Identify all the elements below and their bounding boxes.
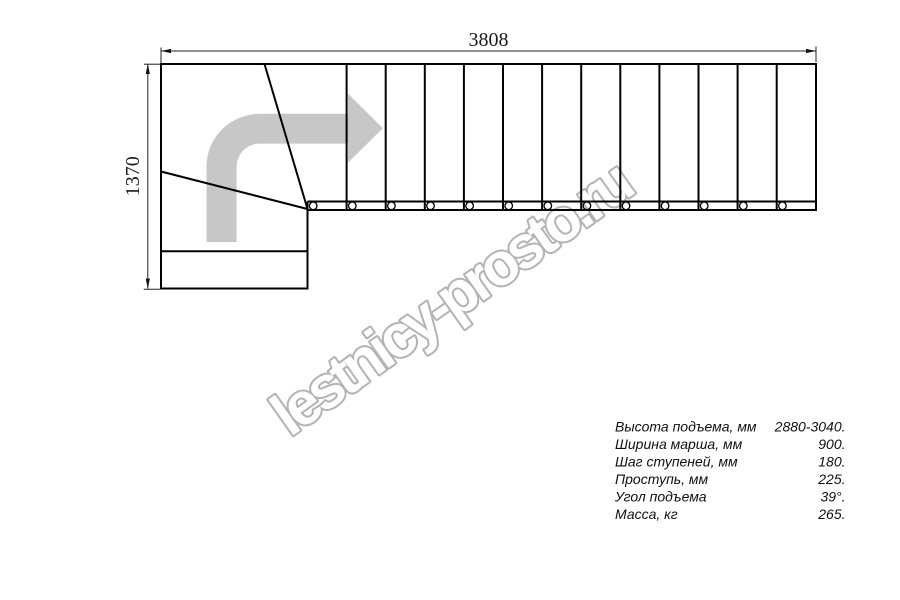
svg-text:Проступь, мм: Проступь, мм [615, 471, 709, 487]
svg-text:Угол подъема: Угол подъема [614, 489, 707, 505]
svg-text:Шаг ступеней, мм: Шаг ступеней, мм [615, 454, 738, 470]
svg-text:Ширина марша, мм: Ширина марша, мм [615, 436, 743, 452]
svg-text:lestnicy-prosto.ru: lestnicy-prosto.ru [259, 149, 643, 448]
svg-text:Высота подъема, мм: Высота подъема, мм [615, 419, 757, 435]
svg-text:1370: 1370 [122, 156, 144, 196]
svg-text:180.: 180. [818, 454, 845, 470]
svg-text:900.: 900. [818, 436, 845, 452]
svg-text:2880-3040.: 2880-3040. [774, 419, 846, 435]
svg-text:39°.: 39°. [820, 489, 845, 505]
svg-text:3808: 3808 [469, 29, 509, 51]
svg-text:Масса, кг: Масса, кг [615, 506, 678, 522]
svg-text:265.: 265. [817, 506, 845, 522]
svg-text:225.: 225. [817, 471, 845, 487]
